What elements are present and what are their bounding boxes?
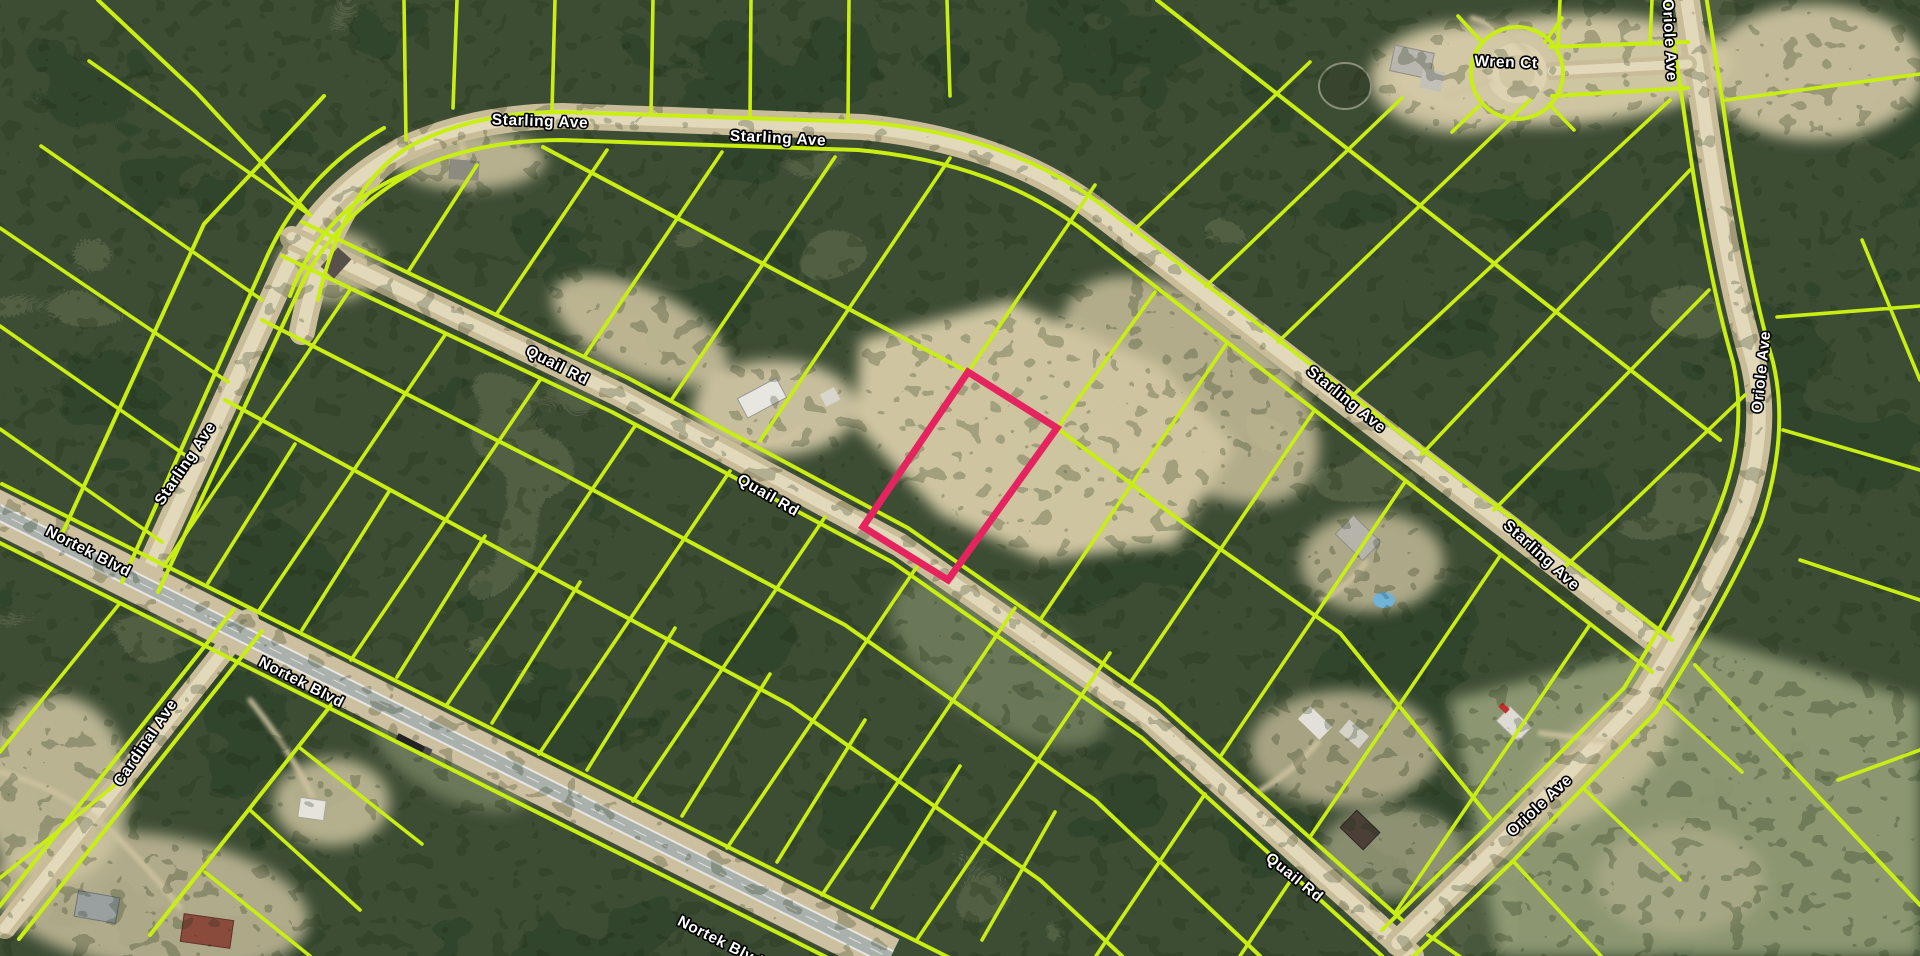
tree-canopy-texture [0,0,1920,956]
map-canvas[interactable]: Starling AveStarling AveStarling AveStar… [0,0,1920,956]
road-label-wren-ct: Wren Ct [1474,53,1538,72]
road-label-starling-ave: Starling Ave [491,111,588,131]
